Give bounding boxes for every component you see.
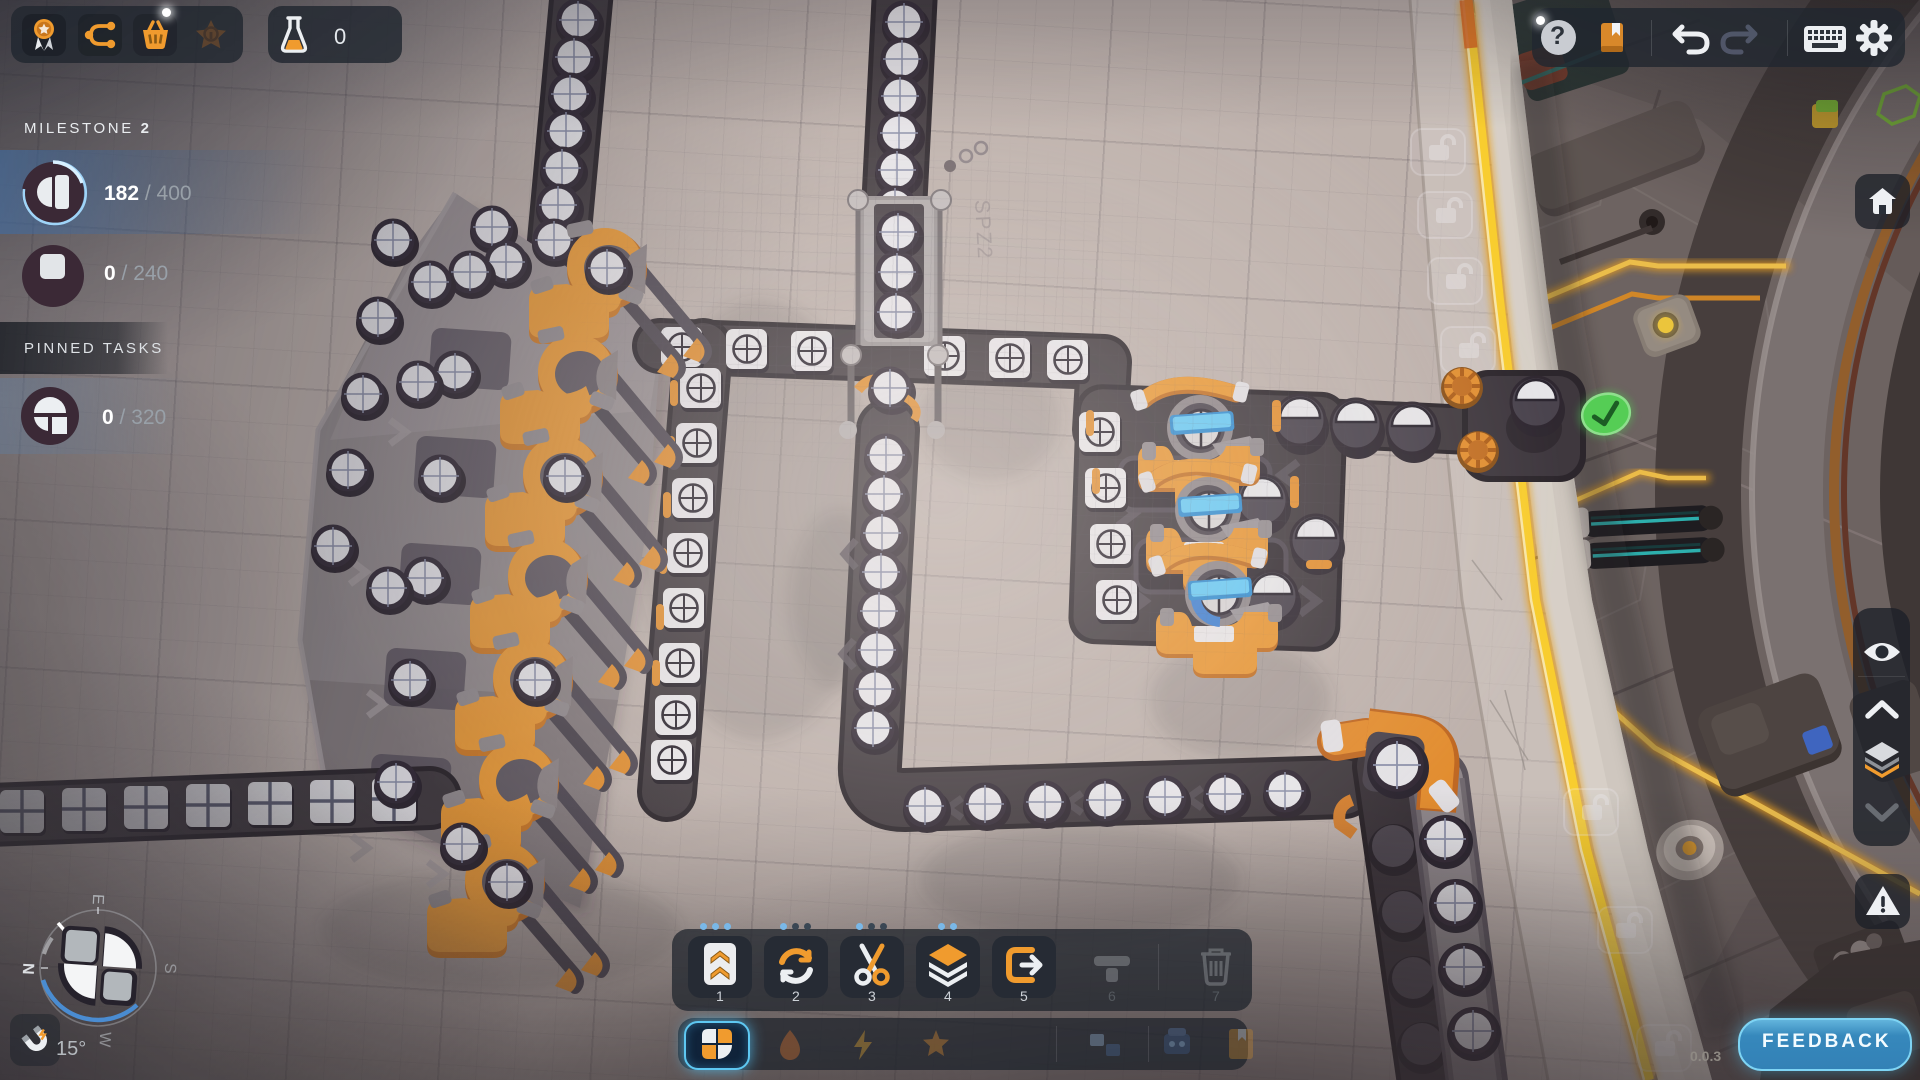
svg-text:N: N: [20, 963, 36, 975]
svg-text:E: E: [89, 894, 107, 906]
svg-text:W: W: [95, 1032, 113, 1049]
svg-text:S: S: [161, 963, 179, 975]
